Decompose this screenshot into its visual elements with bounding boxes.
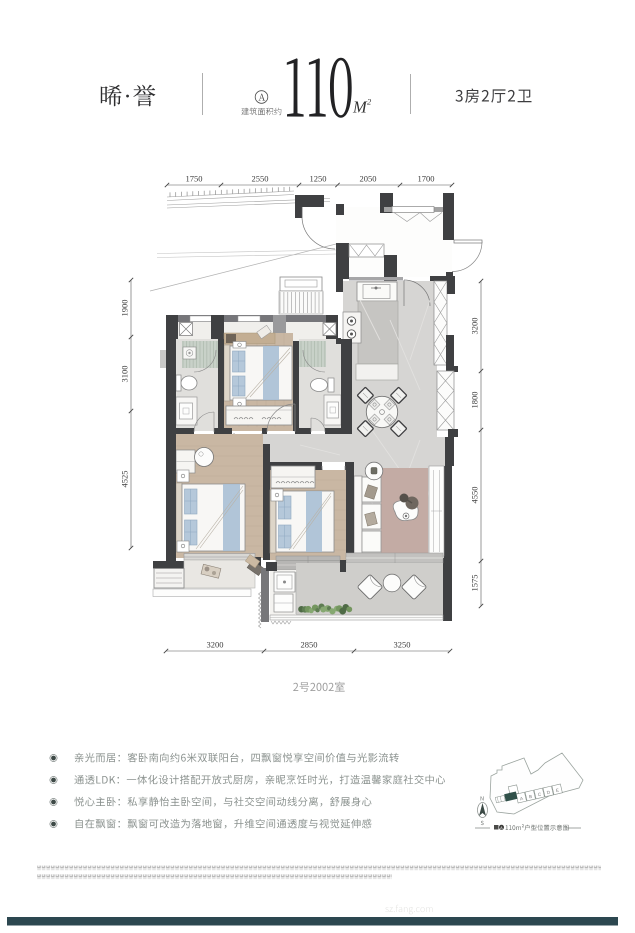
svg-text:1700: 1700 — [418, 174, 435, 184]
svg-text:3200: 3200 — [207, 640, 224, 650]
svg-text:2550: 2550 — [252, 174, 269, 184]
svg-text:1250: 1250 — [310, 174, 327, 184]
svg-text:1575: 1575 — [470, 575, 480, 592]
svg-text:M: M — [352, 98, 368, 117]
svg-text:1750: 1750 — [186, 174, 203, 184]
svg-text:4550: 4550 — [470, 487, 480, 504]
svg-text:3200: 3200 — [470, 318, 480, 335]
svg-text:3100: 3100 — [120, 366, 130, 383]
svg-text:4525: 4525 — [120, 471, 130, 488]
svg-text:1800: 1800 — [470, 392, 480, 409]
svg-text:1900: 1900 — [120, 300, 130, 317]
svg-text:3250: 3250 — [394, 640, 411, 650]
svg-text:2850: 2850 — [301, 640, 318, 650]
svg-text:2050: 2050 — [360, 174, 377, 184]
